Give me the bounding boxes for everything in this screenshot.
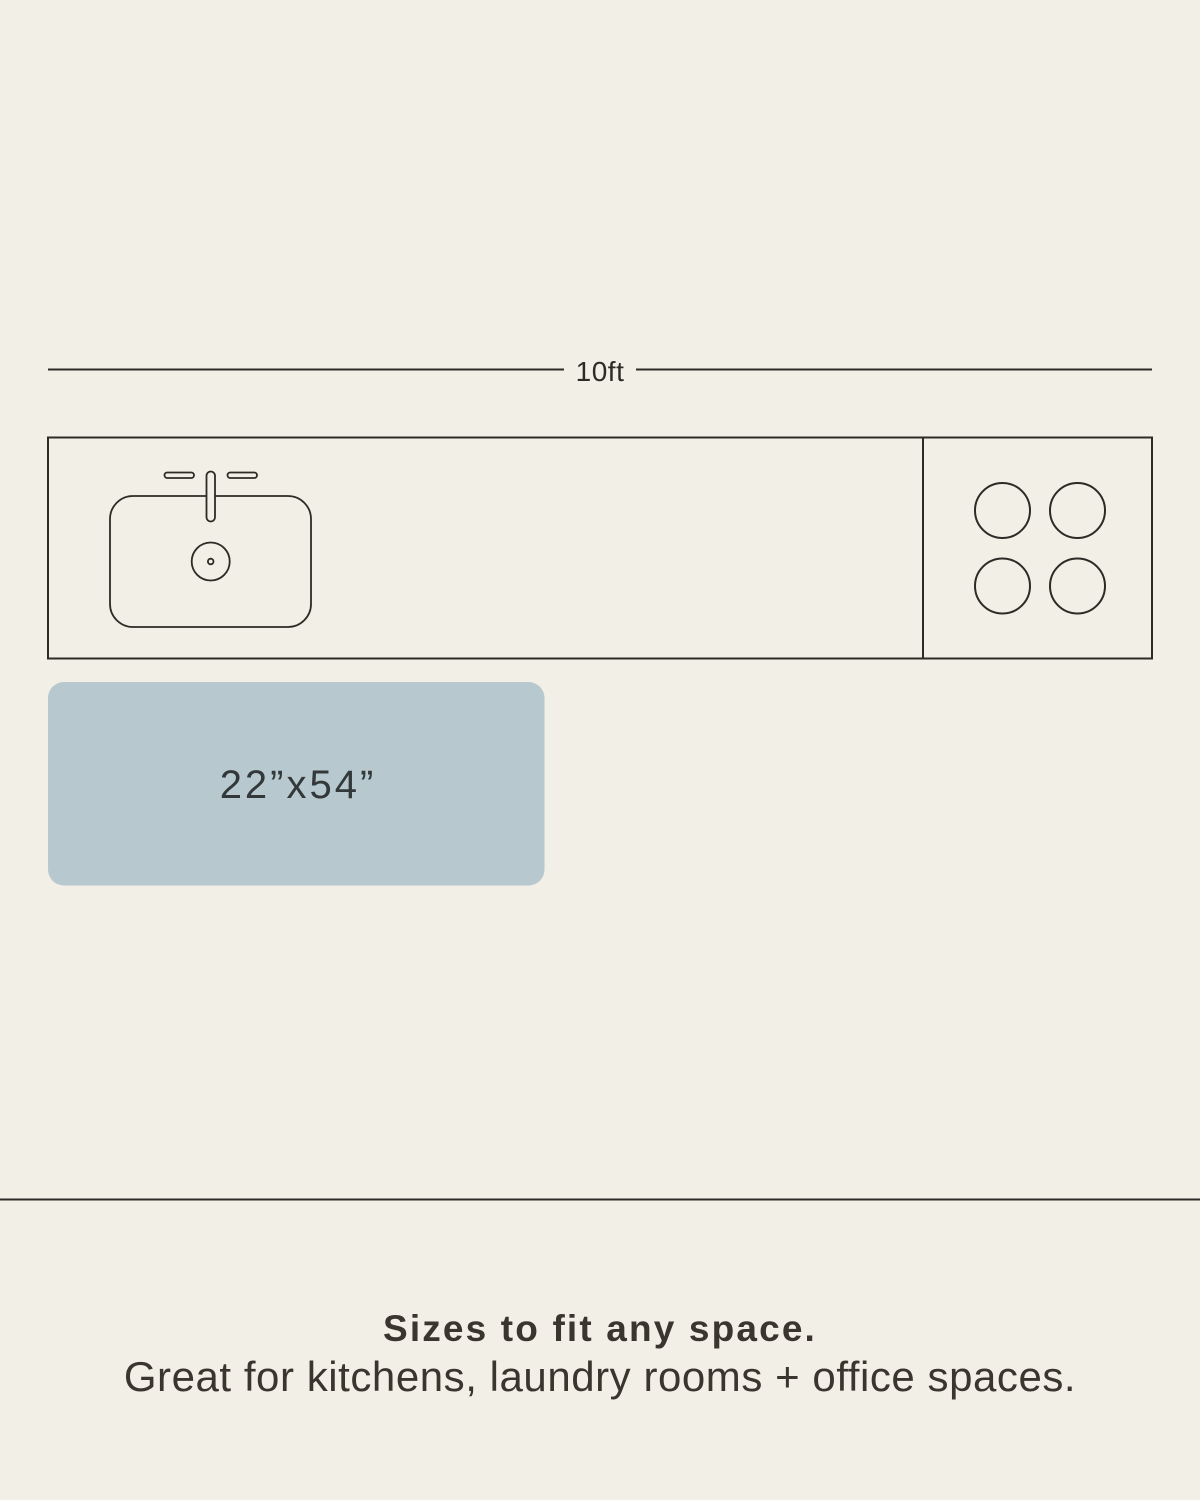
svg-text:10ft: 10ft bbox=[576, 356, 625, 387]
svg-text:22”x54”: 22”x54” bbox=[220, 763, 377, 807]
